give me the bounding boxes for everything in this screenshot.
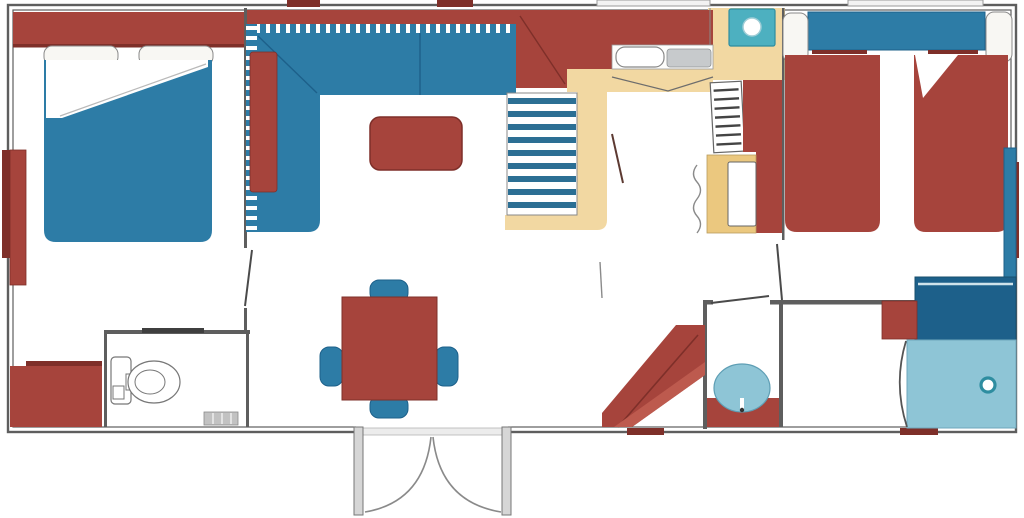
dresser-back	[26, 361, 102, 366]
shower-cabinet	[882, 301, 917, 339]
entrance-threshold	[363, 428, 503, 435]
toilet-flush	[113, 386, 124, 399]
dresser	[10, 366, 102, 427]
wc-right-wall	[246, 332, 249, 427]
sofa-back-shelf	[247, 10, 516, 24]
twin-bed-left	[785, 55, 880, 232]
wc-left-wall	[104, 332, 107, 427]
dining-table	[342, 297, 437, 400]
stair-steps	[508, 98, 576, 208]
door-leaf-right	[502, 427, 511, 515]
pillow	[783, 13, 808, 62]
shower-tray	[907, 340, 1016, 428]
sink	[616, 47, 664, 67]
dining-chair-left	[320, 347, 343, 386]
side-wardrobe	[10, 150, 26, 285]
pillow	[986, 12, 1012, 62]
divider-wall-lower	[244, 308, 247, 334]
wc-sliding-door	[142, 328, 204, 333]
shower-drain	[981, 378, 995, 392]
window-mark-bottom	[900, 428, 938, 435]
bed-top-edge	[812, 50, 867, 54]
kitchen-window	[597, 0, 710, 6]
window-mark-left	[2, 150, 10, 258]
toilet-bowl-inner	[135, 370, 165, 394]
bed-top-edge	[928, 50, 978, 54]
drainer	[667, 49, 711, 67]
floorplan-svg	[0, 0, 1024, 518]
floorplan-canvas	[0, 0, 1024, 518]
shower-shelf	[915, 277, 1016, 341]
tap	[740, 408, 744, 412]
door-leaf-left	[354, 427, 363, 515]
dining-chair-right	[435, 347, 458, 386]
coffee-table	[370, 117, 462, 170]
headboard-shelf	[808, 12, 985, 50]
chaise-cushion	[250, 52, 277, 192]
headboard-wardrobe	[13, 12, 245, 46]
sofa-back-cushions	[247, 24, 516, 33]
window-mark-bottom	[627, 428, 664, 435]
bedroom-window	[848, 0, 983, 6]
fridge	[710, 81, 745, 153]
kitchen-counter	[567, 10, 713, 45]
window-mark	[287, 0, 320, 7]
basin-overflow	[740, 398, 744, 409]
washroom-right-wall	[779, 302, 783, 427]
wardrobe	[1004, 148, 1016, 278]
door-threshold	[204, 412, 238, 425]
hob-burner	[743, 18, 761, 36]
oven-door	[728, 162, 756, 226]
kitchen-counter-corner	[567, 45, 612, 69]
window-mark	[437, 0, 473, 7]
